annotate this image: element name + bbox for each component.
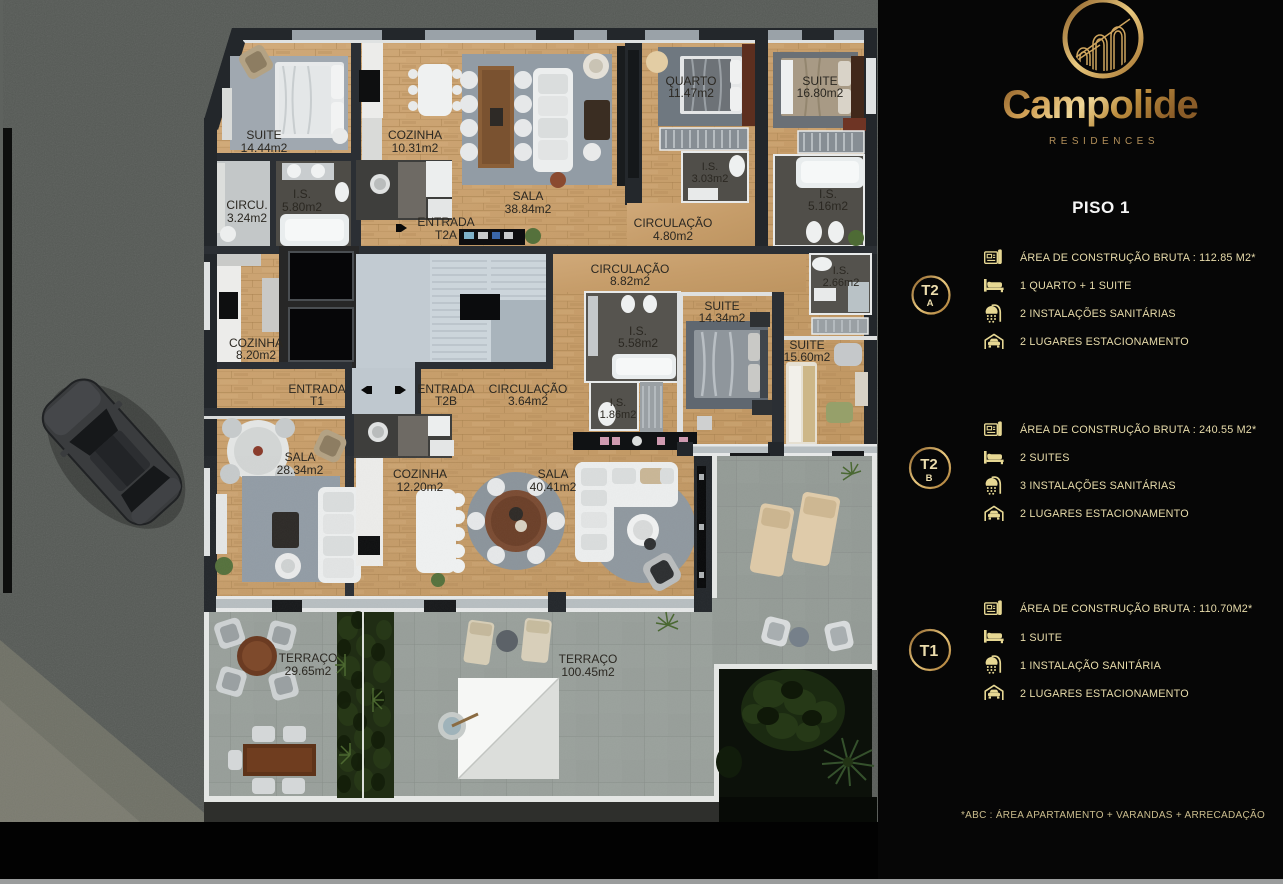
- svg-text:40.41m2: 40.41m2: [530, 480, 577, 494]
- svg-text:T2B: T2B: [435, 394, 457, 408]
- svg-text:SALA: SALA: [538, 467, 569, 481]
- svg-text:28.34m2: 28.34m2: [277, 463, 324, 477]
- svg-text:3.03m2: 3.03m2: [692, 173, 729, 185]
- svg-text:ÁREA DE CONSTRUÇÃO BRUTA : 11: ÁREA DE CONSTRUÇÃO BRUTA : 110.70M2*: [1020, 602, 1253, 615]
- svg-text:A: A: [927, 298, 934, 309]
- svg-text:SALA: SALA: [285, 450, 316, 464]
- svg-text:Campolide: Campolide: [1002, 83, 1197, 127]
- svg-text:T2: T2: [920, 456, 938, 473]
- svg-text:SUITE: SUITE: [246, 128, 281, 142]
- svg-text:SALA: SALA: [513, 189, 544, 203]
- svg-text:1 QUARTO + 1 SUITE: 1 QUARTO + 1 SUITE: [1020, 280, 1132, 292]
- svg-text:29.65m2: 29.65m2: [285, 664, 332, 678]
- svg-text:CIRCULAÇÃO: CIRCULAÇÃO: [634, 216, 713, 230]
- svg-text:T1: T1: [310, 394, 324, 408]
- svg-text:1 SUITE: 1 SUITE: [1020, 632, 1062, 644]
- svg-text:*ABC : ÁREA APARTAMENTO + VAR: *ABC : ÁREA APARTAMENTO + VARANDAS + ARR…: [961, 808, 1265, 821]
- svg-text:1 INSTALAÇÃO SANITÁRIA: 1 INSTALAÇÃO SANITÁRIA: [1020, 659, 1162, 672]
- svg-text:4.80m2: 4.80m2: [653, 229, 693, 243]
- svg-text:T2: T2: [921, 282, 939, 299]
- svg-text:3.64m2: 3.64m2: [508, 394, 548, 408]
- svg-text:PISO 1: PISO 1: [1072, 198, 1130, 217]
- svg-text:I.S.: I.S.: [293, 187, 311, 201]
- svg-text:I.S.: I.S.: [833, 265, 850, 277]
- svg-text:8.82m2: 8.82m2: [610, 274, 650, 288]
- svg-text:ÁREA DE CONSTRUÇÃO BRUTA : 24: ÁREA DE CONSTRUÇÃO BRUTA : 240.55 M2*: [1020, 423, 1257, 436]
- svg-text:COZINHA: COZINHA: [393, 467, 447, 481]
- svg-text:15.60m2: 15.60m2: [784, 350, 831, 364]
- svg-text:12.20m2: 12.20m2: [397, 480, 444, 494]
- svg-text:2 SUITES: 2 SUITES: [1020, 452, 1070, 464]
- svg-text:10.31m2: 10.31m2: [392, 141, 439, 155]
- svg-text:T1: T1: [920, 643, 939, 660]
- svg-text:5.80m2: 5.80m2: [282, 200, 322, 214]
- svg-text:5.16m2: 5.16m2: [808, 199, 848, 213]
- svg-text:14.44m2: 14.44m2: [241, 141, 288, 155]
- svg-text:CIRCU.: CIRCU.: [226, 198, 267, 212]
- svg-text:38.84m2: 38.84m2: [505, 202, 552, 216]
- svg-text:16.80m2: 16.80m2: [797, 86, 844, 100]
- svg-text:2 INSTALAÇÕES SANITÁRIAS: 2 INSTALAÇÕES SANITÁRIAS: [1020, 307, 1176, 320]
- svg-text:5.58m2: 5.58m2: [618, 336, 658, 350]
- svg-text:2 LUGARES ESTACIONAMENTO: 2 LUGARES ESTACIONAMENTO: [1020, 508, 1189, 520]
- svg-text:I.S.: I.S.: [702, 161, 719, 173]
- svg-text:3 INSTALAÇÕES SANITÁRIAS: 3 INSTALAÇÕES SANITÁRIAS: [1020, 479, 1176, 492]
- svg-text:1.86m2: 1.86m2: [600, 409, 637, 421]
- svg-text:TERRAÇO: TERRAÇO: [279, 651, 338, 665]
- svg-text:2 LUGARES ESTACIONAMENTO: 2 LUGARES ESTACIONAMENTO: [1020, 688, 1189, 700]
- svg-text:2.66m2: 2.66m2: [823, 277, 860, 289]
- svg-text:RESIDENCES: RESIDENCES: [1049, 136, 1159, 147]
- svg-text:3.24m2: 3.24m2: [227, 211, 267, 225]
- svg-text:T2A: T2A: [435, 228, 457, 242]
- svg-text:B: B: [926, 473, 933, 484]
- svg-text:11.47m2: 11.47m2: [668, 86, 714, 100]
- svg-text:8.20m2: 8.20m2: [236, 348, 276, 362]
- svg-text:14.34m2: 14.34m2: [699, 311, 746, 325]
- svg-text:ÁREA DE CONSTRUÇÃO BRUTA : 11: ÁREA DE CONSTRUÇÃO BRUTA : 112.85 M2*: [1020, 251, 1256, 264]
- svg-text:ENTRADA: ENTRADA: [417, 215, 474, 229]
- svg-text:COZINHA: COZINHA: [388, 128, 442, 142]
- svg-text:I.S.: I.S.: [610, 397, 627, 409]
- svg-text:TERRAÇO: TERRAÇO: [559, 652, 618, 666]
- svg-text:2 LUGARES ESTACIONAMENTO: 2 LUGARES ESTACIONAMENTO: [1020, 336, 1189, 348]
- svg-text:100.45m2: 100.45m2: [561, 665, 615, 679]
